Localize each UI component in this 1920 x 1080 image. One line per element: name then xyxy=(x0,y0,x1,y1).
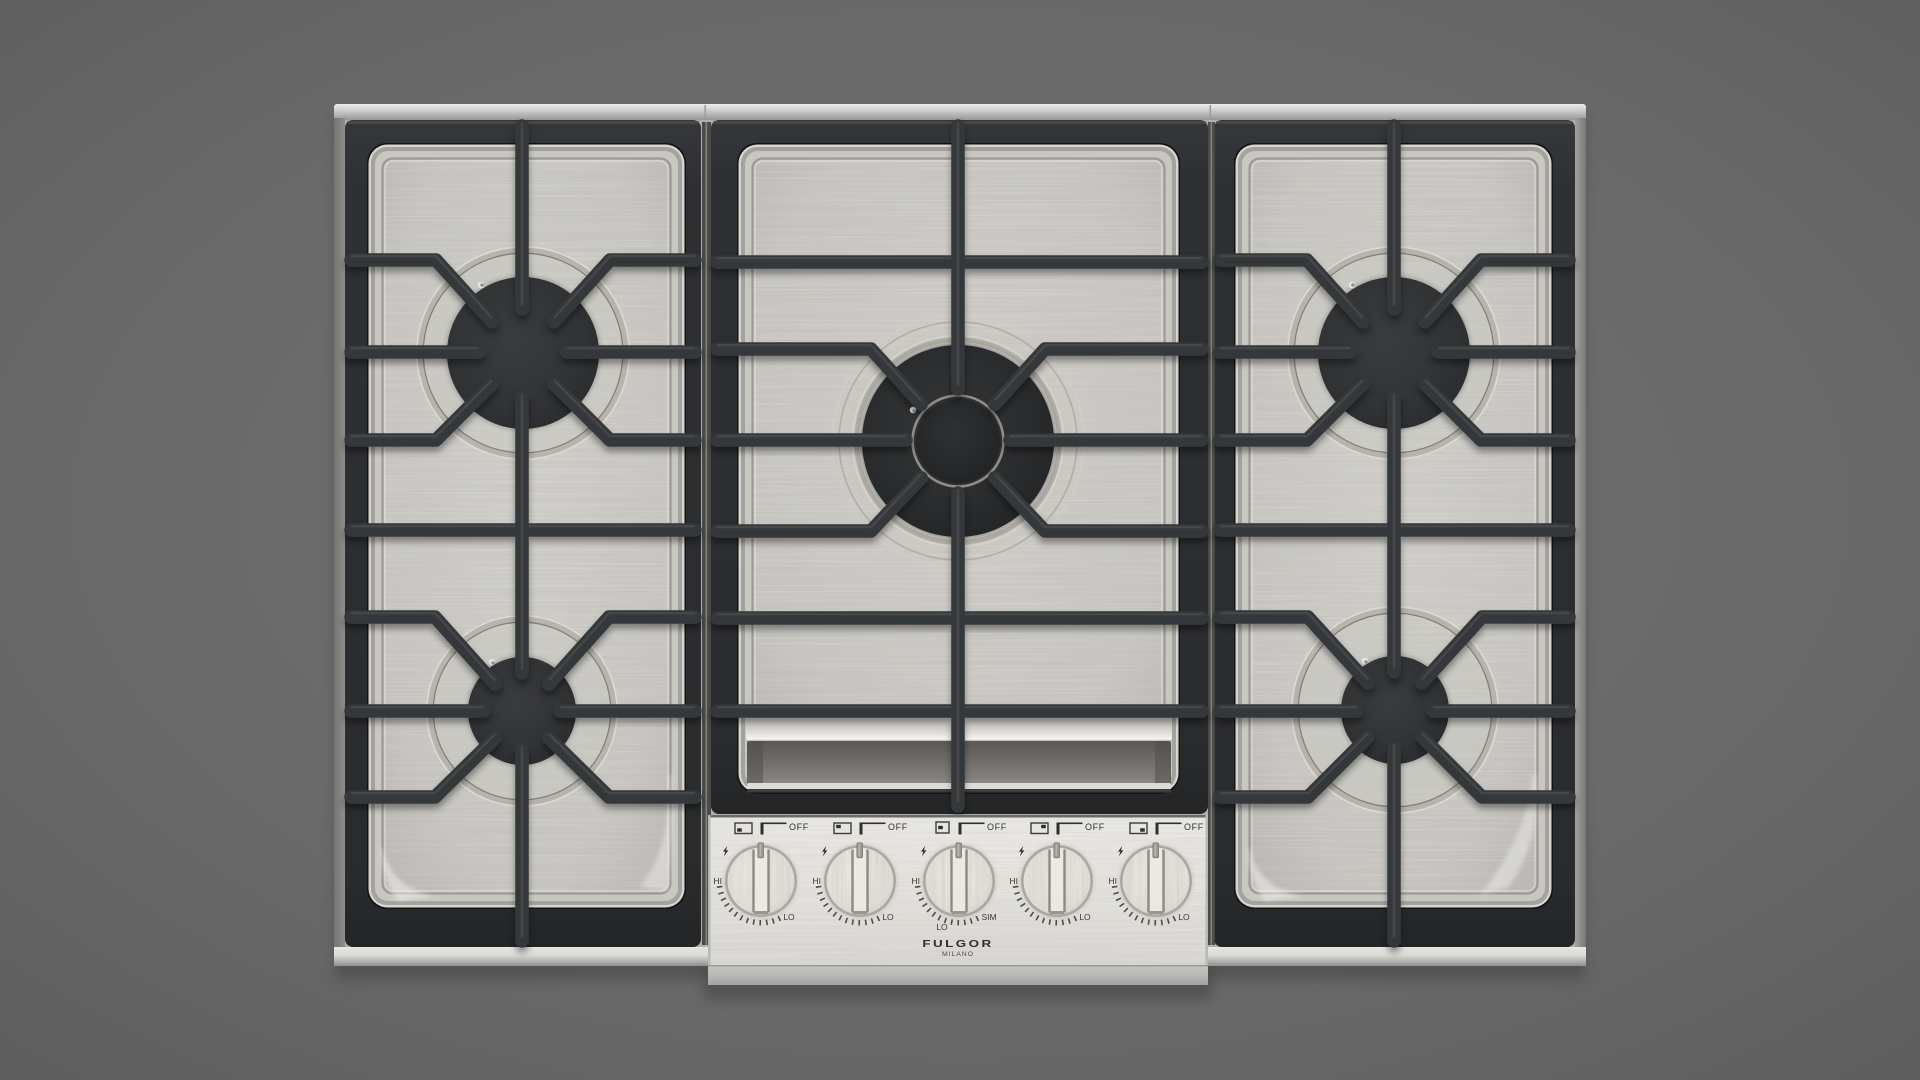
svg-text:LO: LO xyxy=(882,912,894,922)
svg-text:LO: LO xyxy=(1178,912,1190,922)
svg-text:LO: LO xyxy=(936,922,948,932)
svg-text:FULGOR: FULGOR xyxy=(922,937,993,949)
svg-text:HI: HI xyxy=(1109,876,1118,886)
svg-text:LO: LO xyxy=(1079,912,1091,922)
svg-text:HI: HI xyxy=(1010,876,1019,886)
svg-text:HI: HI xyxy=(714,876,723,886)
svg-text:HI: HI xyxy=(813,876,822,886)
svg-text:OFF: OFF xyxy=(1184,822,1204,832)
svg-text:OFF: OFF xyxy=(1085,822,1105,832)
svg-text:LO: LO xyxy=(783,912,795,922)
svg-text:MILANO: MILANO xyxy=(942,951,974,957)
svg-text:OFF: OFF xyxy=(789,822,809,832)
svg-text:HI: HI xyxy=(912,876,921,886)
svg-text:SIM: SIM xyxy=(981,912,996,922)
svg-text:OFF: OFF xyxy=(888,822,908,832)
svg-text:OFF: OFF xyxy=(987,822,1007,832)
